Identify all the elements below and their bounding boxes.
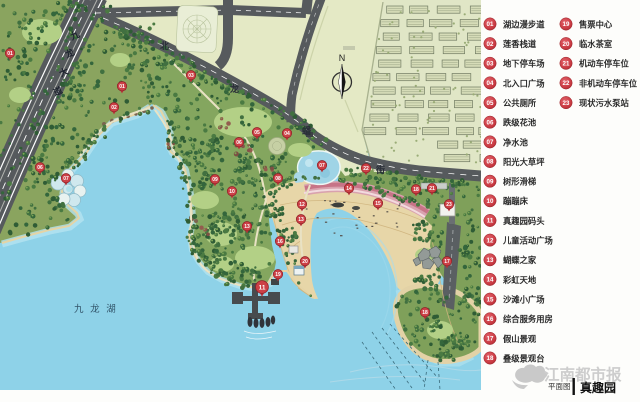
svg-text:19: 19 [563, 21, 570, 28]
svg-text:03: 03 [188, 73, 194, 79]
svg-text:21: 21 [429, 186, 435, 192]
svg-text:07: 07 [63, 176, 69, 182]
svg-text:蟠: 蟠 [302, 125, 312, 136]
svg-text:11: 11 [487, 218, 494, 225]
svg-text:06: 06 [236, 140, 242, 146]
svg-text:儿童活动广场: 儿童活动广场 [502, 236, 553, 246]
svg-text:龙: 龙 [229, 83, 239, 94]
svg-text:18: 18 [422, 310, 428, 316]
svg-text:06: 06 [487, 120, 494, 127]
svg-text:九 龙 湖: 九 龙 湖 [74, 303, 118, 315]
svg-text:湖边漫步道: 湖边漫步道 [503, 19, 545, 29]
svg-text:06: 06 [37, 165, 43, 171]
svg-text:10: 10 [487, 198, 494, 205]
svg-text:北入口广场: 北入口广场 [503, 78, 545, 88]
svg-text:现状污水泵站: 现状污水泵站 [579, 98, 629, 108]
svg-text:09: 09 [212, 177, 218, 183]
svg-text:05: 05 [487, 100, 494, 107]
svg-text:23: 23 [563, 100, 570, 107]
svg-text:23: 23 [446, 202, 452, 208]
svg-text:02: 02 [487, 41, 494, 48]
svg-text:蹦蹦床: 蹦蹦床 [503, 196, 529, 206]
svg-text:13: 13 [244, 224, 250, 230]
svg-text:树形滑梯: 树形滑梯 [503, 177, 537, 187]
svg-text:03: 03 [487, 61, 494, 68]
svg-text:13: 13 [298, 217, 304, 223]
svg-text:20: 20 [302, 259, 308, 265]
svg-text:15: 15 [375, 201, 381, 207]
svg-text:假山景观: 假山景观 [503, 334, 537, 344]
svg-text:街: 街 [375, 164, 385, 175]
svg-text:蝴蝶之家: 蝴蝶之家 [503, 255, 537, 265]
svg-text:沙滩小广场: 沙滩小广场 [503, 295, 545, 305]
svg-text:11: 11 [259, 285, 266, 292]
svg-text:彩虹天地: 彩虹天地 [502, 275, 537, 285]
svg-text:非机动车停车位: 非机动车停车位 [579, 78, 638, 88]
svg-text:北: 北 [160, 40, 169, 51]
svg-text:公共厕所: 公共厕所 [503, 98, 537, 108]
svg-text:地下停车场: 地下停车场 [503, 59, 545, 69]
svg-text:莲香栈道: 莲香栈道 [503, 39, 537, 49]
svg-text:跌级花池: 跌级花池 [503, 118, 537, 128]
svg-text:08: 08 [275, 176, 281, 182]
svg-text:17: 17 [444, 259, 450, 265]
svg-text:21: 21 [563, 61, 570, 68]
svg-text:综合服务用房: 综合服务用房 [503, 314, 553, 324]
svg-text:08: 08 [487, 159, 494, 166]
svg-text:01: 01 [7, 51, 13, 57]
svg-text:真趣园: 真趣园 [580, 380, 616, 395]
svg-text:04: 04 [487, 80, 494, 87]
svg-text:22: 22 [563, 80, 570, 87]
svg-text:01: 01 [487, 21, 494, 28]
svg-text:20: 20 [563, 41, 570, 48]
svg-text:19: 19 [275, 272, 281, 278]
svg-text:16: 16 [277, 239, 283, 245]
svg-text:16: 16 [487, 316, 494, 323]
svg-text:售票中心: 售票中心 [579, 19, 613, 29]
svg-text:15: 15 [487, 296, 494, 303]
svg-text:真趣园码头: 真趣园码头 [503, 216, 545, 226]
svg-text:01: 01 [119, 84, 125, 90]
svg-text:N: N [339, 53, 346, 63]
svg-text:05: 05 [254, 130, 260, 136]
svg-text:18: 18 [413, 187, 419, 193]
svg-text:02: 02 [111, 105, 117, 111]
svg-text:07: 07 [319, 163, 325, 169]
svg-text:14: 14 [487, 277, 494, 284]
svg-text:临水茶室: 临水茶室 [579, 39, 613, 49]
svg-text:04: 04 [284, 131, 290, 137]
svg-text:13: 13 [487, 257, 494, 264]
svg-text:12: 12 [487, 237, 494, 244]
svg-text:平面图: 平面图 [548, 382, 571, 391]
svg-text:叠级景观台: 叠级景观台 [503, 353, 545, 363]
svg-text:10: 10 [229, 189, 235, 195]
svg-text:机动车停车位: 机动车停车位 [579, 59, 629, 69]
svg-text:07: 07 [487, 139, 494, 146]
svg-text:18: 18 [487, 355, 494, 362]
svg-text:17: 17 [487, 336, 494, 343]
svg-text:净水池: 净水池 [503, 137, 529, 147]
svg-text:09: 09 [487, 178, 494, 185]
svg-text:阳光大草坪: 阳光大草坪 [503, 157, 545, 167]
svg-text:14: 14 [346, 186, 352, 192]
svg-text:22: 22 [363, 166, 369, 172]
svg-text:12: 12 [299, 202, 305, 208]
